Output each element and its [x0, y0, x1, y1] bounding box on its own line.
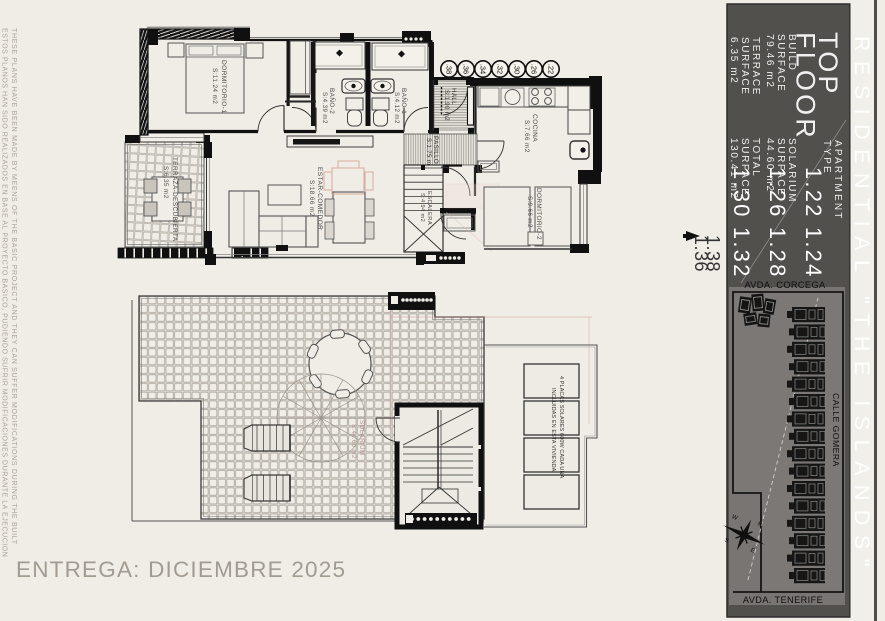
svg-text:S:4.39 m2: S:4.39 m2	[321, 92, 328, 124]
svg-text:INCLUIDAS EN ESTA VIVIENDA: INCLUIDAS EN ESTA VIVIENDA	[550, 388, 556, 472]
svg-text:.38: .38	[445, 64, 454, 74]
svg-text:S:1.90 m2: S:1.90 m2	[443, 90, 449, 121]
svg-text:BAÑO-1: BAÑO-1	[400, 88, 409, 114]
svg-text:1.38: 1.38	[703, 235, 723, 272]
svg-text:HALL: HALL	[450, 88, 457, 105]
svg-text:.26: .26	[530, 64, 539, 74]
svg-text:1.30 1.32: 1.30 1.32	[729, 167, 754, 279]
svg-text:S:4.12 m2: S:4.12 m2	[393, 92, 400, 124]
svg-text:.32: .32	[496, 64, 505, 74]
svg-text:COCINA: COCINA	[531, 114, 538, 142]
svg-text:S:9.66 m2: S:9.66 m2	[526, 196, 533, 228]
svg-text:DORMITORIO-1: DORMITORIO-1	[220, 60, 227, 113]
svg-text:ESTOS PLANOS HAN SIDO REALIZAD: ESTOS PLANOS HAN SIDO REALIZADOS EN BASE…	[1, 28, 8, 557]
svg-text:4 PLACAS SOLARES 600W CADA UNA: 4 PLACAS SOLARES 600W CADA UNA	[558, 376, 564, 479]
svg-text:S:6.35 m2: S:6.35 m2	[162, 166, 169, 199]
svg-text:S:11.24 m2: S:11.24 m2	[211, 68, 218, 104]
svg-text:DORMITORIO-2: DORMITORIO-2	[535, 188, 542, 240]
svg-text:S:7.66 m2: S:7.66 m2	[523, 120, 530, 153]
svg-text:BAÑO-2: BAÑO-2	[328, 88, 337, 114]
svg-text:THESE PLANS HAVE BEEN MADE BY: THESE PLANS HAVE BEEN MADE BY MEENS OF T…	[10, 28, 17, 545]
svg-text:RESIDENTIAL "THE ISLANDS": RESIDENTIAL "THE ISLANDS"	[850, 36, 874, 576]
svg-text:SOLARIUM: SOLARIUM	[358, 420, 365, 456]
svg-text:.30: .30	[513, 64, 522, 74]
svg-text:CALLE GOMERA: CALLE GOMERA	[831, 393, 841, 467]
svg-text:.36: .36	[462, 64, 471, 74]
svg-text:.22: .22	[547, 64, 556, 74]
svg-text:ESCALERA: ESCALERA	[426, 191, 432, 225]
svg-text:S:18.66 m2: S:18.66 m2	[308, 180, 315, 217]
svg-text:S:4.94 m2: S:4.94 m2	[419, 193, 425, 222]
svg-text:1.22 1.24: 1.22 1.24	[801, 167, 826, 279]
svg-text:.34: .34	[479, 64, 488, 74]
svg-text:1.26 1.28: 1.26 1.28	[765, 167, 790, 279]
svg-text:ENTREGA: DICIEMBRE 2025: ENTREGA: DICIEMBRE 2025	[16, 557, 346, 582]
svg-text:PASILLO: PASILLO	[432, 136, 439, 164]
svg-text:AVDA. CORCEGA: AVDA. CORCEGA	[744, 280, 826, 290]
svg-text:TERRAZA-DESCUBIERTA: TERRAZA-DESCUBIERTA	[171, 157, 178, 242]
svg-text:S:44.60 m2: S:44.60 m2	[350, 424, 356, 459]
svg-text:AVDA. TENERIFE: AVDA. TENERIFE	[743, 595, 823, 605]
